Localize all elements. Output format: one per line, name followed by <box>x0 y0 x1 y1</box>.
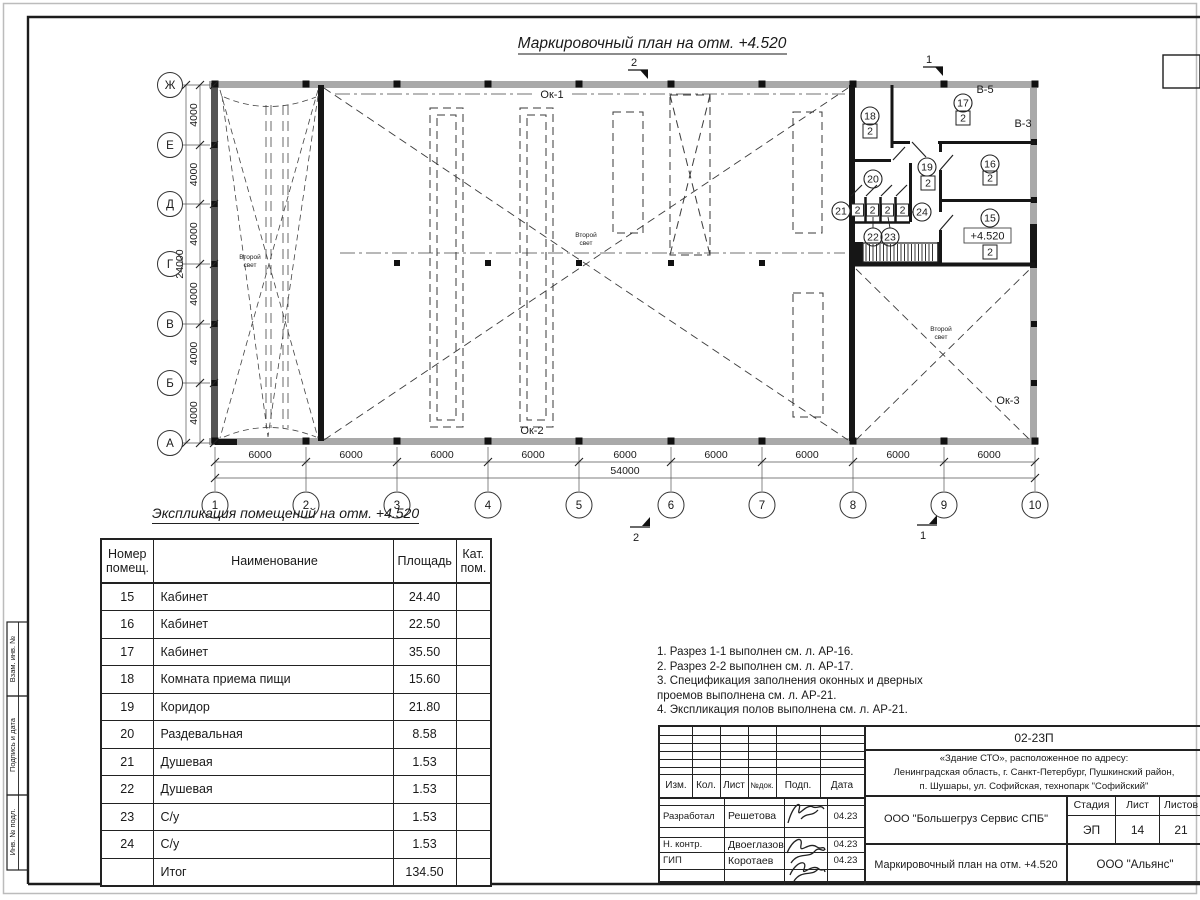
tb-role-gip: ГИП <box>663 852 724 869</box>
side-label-podpis: Подпись и дата <box>8 717 17 772</box>
row-cat <box>456 721 491 749</box>
label-v5: В-5 <box>976 84 993 96</box>
row-num: 15 <box>101 583 153 611</box>
second-light-1a: Второй <box>239 253 261 261</box>
row-cat <box>456 611 491 639</box>
dim-6000-5: 6000 <box>613 449 637 461</box>
table-row: 21Душевая1.53 <box>101 748 491 776</box>
signatures <box>784 795 827 885</box>
axis-d: Д <box>166 199 174 211</box>
axis-8: 8 <box>850 500 856 512</box>
tb-col-data: Дата <box>820 774 864 797</box>
axis-9: 9 <box>941 500 947 512</box>
dim-6000-3: 6000 <box>430 449 454 461</box>
axis-zh: Ж <box>165 80 176 92</box>
table-row: 24С/у1.53 <box>101 831 491 859</box>
tb-name-gip: Коротаев <box>728 852 784 869</box>
tb-sheets-label: Листов <box>1160 795 1200 815</box>
tb-date-ncontr: 04.23 <box>827 837 864 852</box>
title-block: Изм. Кол. Лист №док. Подп. Дата Разработ… <box>658 725 1200 883</box>
dim-6000-6: 6000 <box>704 449 728 461</box>
tb-address-line2: Ленинградская область, г. Санкт-Петербур… <box>866 765 1200 779</box>
dim-6000-1: 6000 <box>248 449 272 461</box>
tb-name-ncontr: Двоеглазов <box>728 837 784 852</box>
row-area: 1.53 <box>393 831 456 859</box>
room-15-cat: 2 <box>987 247 993 259</box>
label-ok3: Ок-3 <box>996 395 1019 407</box>
room-schedule-table: Номер помещ. Наименование Площадь Кат. п… <box>100 538 492 887</box>
label-ok1: Ок-1 <box>540 89 563 101</box>
tb-col-izm: Изм. <box>660 774 692 797</box>
tb-address-line3: п. Шушары, ул. Софийская, технопарк "Соф… <box>866 779 1200 793</box>
room-22-cat: 2 <box>870 205 876 217</box>
table-row: 23С/у1.53 <box>101 803 491 831</box>
row-num: 20 <box>101 721 153 749</box>
row-num: 16 <box>101 611 153 639</box>
tb-date-developer: 04.23 <box>827 805 864 827</box>
dim-6000-7: 6000 <box>795 449 819 461</box>
room-24-num: 24 <box>916 207 928 219</box>
table-total-row: Итог134.50 <box>101 858 491 886</box>
tb-doc-name: Маркировочный план на отм. +4.520 <box>866 845 1066 885</box>
axis-b: Б <box>166 378 174 390</box>
grid-dashdot-lines <box>335 94 845 253</box>
row-name: Кабинет <box>153 583 393 611</box>
tb-col-list: Лист <box>720 774 748 797</box>
room-19-cat: 2 <box>925 178 931 190</box>
section-1-top: 1 <box>926 54 932 66</box>
row-area: 21.80 <box>393 693 456 721</box>
room-17-cat: 2 <box>960 113 966 125</box>
axis-v: В <box>166 319 174 331</box>
section-1-bottom: 1 <box>920 530 926 542</box>
row-area: 22.50 <box>393 611 456 639</box>
second-light-3a: Второй <box>930 325 952 333</box>
dim-4000-6: 4000 <box>188 401 200 425</box>
row-area: 1.53 <box>393 803 456 831</box>
dim-4000-5: 4000 <box>188 342 200 366</box>
row-cat <box>456 858 491 886</box>
row-area: 35.50 <box>393 638 456 666</box>
dim-24000: 24000 <box>174 249 186 278</box>
second-light-2a: Второй <box>575 231 597 239</box>
table-row: 20Раздевальная8.58 <box>101 721 491 749</box>
signature-developer <box>788 804 824 823</box>
tb-org: ООО "Большегруз Сервис СПБ" <box>866 797 1066 841</box>
room-18-cat: 2 <box>867 126 873 138</box>
row-area: 1.53 <box>393 776 456 804</box>
tb-col-kol: Кол. <box>692 774 720 797</box>
room-16-num: 16 <box>984 159 996 171</box>
total-label: Итог <box>153 858 393 886</box>
tb-stage-value: ЭП <box>1068 816 1115 843</box>
room-22-num: 22 <box>867 232 879 244</box>
second-light-2b: свет <box>579 240 592 247</box>
tb-org2: ООО "Альянс" <box>1068 845 1200 885</box>
table-row: 15Кабинет24.40 <box>101 583 491 611</box>
section-marks: 2 1 2 1 <box>628 54 943 544</box>
col-header-name: Наименование <box>153 539 393 583</box>
tb-role-developer: Разработал <box>663 805 724 827</box>
room-23-cat: 2 <box>885 205 891 217</box>
row-name: Кабинет <box>153 638 393 666</box>
col-header-num: Номер помещ. <box>101 539 153 583</box>
table-row: 22Душевая1.53 <box>101 776 491 804</box>
label-ok2: Ок-2 <box>520 425 543 437</box>
row-num: 22 <box>101 776 153 804</box>
row-num: 23 <box>101 803 153 831</box>
row-cat <box>456 748 491 776</box>
label-v3: В-3 <box>1014 118 1031 130</box>
row-cat <box>456 776 491 804</box>
room-20-num: 20 <box>867 174 879 186</box>
row-area: 24.40 <box>393 583 456 611</box>
dim-4000-1: 4000 <box>188 103 200 127</box>
table-row: 16Кабинет22.50 <box>101 611 491 639</box>
signature-gip <box>790 863 825 881</box>
tb-date-gip: 04.23 <box>827 852 864 869</box>
tb-role-ncontr: Н. контр. <box>663 837 724 852</box>
room-19-num: 19 <box>921 162 933 174</box>
tb-col-ndok: №док. <box>748 774 776 797</box>
dim-6000-4: 6000 <box>521 449 545 461</box>
plan-title-group: Маркировочный план на отм. +4.520 <box>518 35 787 54</box>
dim-6000-8: 6000 <box>886 449 910 461</box>
row-num: 18 <box>101 666 153 694</box>
side-stamp-strip: Взам. инв. № Подпись и дата Инв. № подл. <box>7 622 28 870</box>
section-2-bottom: 2 <box>633 532 639 544</box>
total-value: 134.50 <box>393 858 456 886</box>
dim-6000-2: 6000 <box>339 449 363 461</box>
dim-4000-3: 4000 <box>188 222 200 246</box>
left-bay-marks <box>220 90 318 438</box>
schedule-title: Экспликация помещений на отм. +4.520 <box>152 505 419 524</box>
dim-4000-4: 4000 <box>188 282 200 306</box>
room-24-cat: 2 <box>900 205 906 217</box>
axis-7: 7 <box>759 500 765 512</box>
room-18-num: 18 <box>864 111 876 123</box>
tb-col-podp: Подп. <box>776 774 820 797</box>
row-cat <box>456 583 491 611</box>
room-21-num: 21 <box>835 206 847 218</box>
corner-code-box <box>1163 55 1200 88</box>
row-cat <box>456 803 491 831</box>
col-header-cat: Кат. пом. <box>456 539 491 583</box>
room-21-cat: 2 <box>855 205 861 217</box>
note-item: 4. Экспликация полов выполнена см. л. АР… <box>657 703 997 718</box>
row-name: С/у <box>153 831 393 859</box>
axis-6: 6 <box>668 500 674 512</box>
row-name: Коридор <box>153 693 393 721</box>
axis-a: А <box>166 438 174 450</box>
tb-sheet-label: Лист <box>1116 795 1159 815</box>
drawing-sheet: Взам. инв. № Подпись и дата Инв. № подл.… <box>0 0 1200 900</box>
tb-name-developer: Решетова <box>728 805 784 827</box>
table-row: 18Комната приема пищи15.60 <box>101 666 491 694</box>
tb-sheet-value: 14 <box>1116 816 1159 843</box>
row-cat <box>456 638 491 666</box>
side-label-inv: Инв. № подл. <box>8 809 17 856</box>
signature-ncontr <box>787 839 825 863</box>
section-2-top: 2 <box>631 57 637 69</box>
row-area: 15.60 <box>393 666 456 694</box>
dim-54000: 54000 <box>610 465 639 477</box>
row-area: 1.53 <box>393 748 456 776</box>
axis-10: 10 <box>1029 500 1042 512</box>
row-cat <box>456 666 491 694</box>
row-name: Кабинет <box>153 611 393 639</box>
axis-g: Г <box>167 259 174 271</box>
plan-title: Маркировочный план на отм. +4.520 <box>518 35 787 52</box>
tb-sheets-value: 21 <box>1160 816 1200 843</box>
row-num: 21 <box>101 748 153 776</box>
tb-stage-label: Стадия <box>1068 795 1115 815</box>
note-item: 3. Спецификация заполнения оконных и две… <box>657 674 997 703</box>
table-row: 19Коридор21.80 <box>101 693 491 721</box>
dim-4000-2: 4000 <box>188 163 200 187</box>
table-row: 17Кабинет35.50 <box>101 638 491 666</box>
note-item: 1. Разрез 1-1 выполнен см. л. АР-16. <box>657 645 997 660</box>
row-num: 24 <box>101 831 153 859</box>
row-num <box>101 858 153 886</box>
tb-address-line1: «Здание СТО», расположенное по адресу: <box>866 751 1200 765</box>
axis-e: Е <box>166 140 174 152</box>
axis-4: 4 <box>485 500 492 512</box>
notes-list: 1. Разрез 1-1 выполнен см. л. АР-16. 2. … <box>657 645 997 718</box>
row-name: С/у <box>153 803 393 831</box>
row-num: 19 <box>101 693 153 721</box>
axis-5: 5 <box>576 500 582 512</box>
second-light-labels: Второй свет Второй свет Второй свет <box>239 231 952 341</box>
col-header-area: Площадь <box>393 539 456 583</box>
note-item: 2. Разрез 2-2 выполнен см. л. АР-17. <box>657 660 997 675</box>
row-name: Комната приема пищи <box>153 666 393 694</box>
row-cat <box>456 831 491 859</box>
room-15-num: 15 <box>984 213 996 225</box>
row-num: 17 <box>101 638 153 666</box>
tb-doc-code: 02-23П <box>866 727 1200 749</box>
dimensions-bottom: 6000 6000 6000 6000 6000 6000 6000 6000 … <box>211 447 1039 491</box>
row-name: Душевая <box>153 776 393 804</box>
dim-6000-9: 6000 <box>977 449 1001 461</box>
second-light-1b: свет <box>243 262 256 269</box>
opening-labels: Ок-1 Ок-2 Ок-3 В-5 В-3 <box>520 84 1031 437</box>
second-light-3b: свет <box>934 334 947 341</box>
level-mark-value: +4.520 <box>971 231 1005 243</box>
row-name: Душевая <box>153 748 393 776</box>
row-area: 8.58 <box>393 721 456 749</box>
side-label-vzam: Взам. инв. № <box>8 636 17 682</box>
room-16-cat: 2 <box>987 173 993 185</box>
row-cat <box>456 693 491 721</box>
level-mark: +4.520 <box>964 228 1011 243</box>
room-23-num: 23 <box>884 232 896 244</box>
row-name: Раздевальная <box>153 721 393 749</box>
room-17-num: 17 <box>957 98 969 110</box>
